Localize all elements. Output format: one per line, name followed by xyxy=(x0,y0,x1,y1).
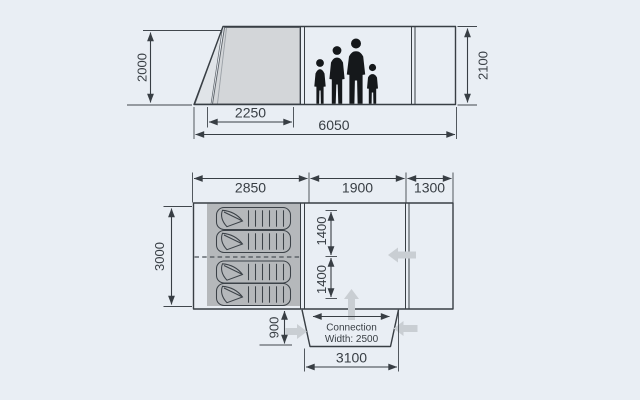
arrow-left-canopy xyxy=(388,248,416,263)
dim-cabin-widths: 1400 1400 xyxy=(314,211,337,299)
dim-label-2250: 2250 xyxy=(235,105,266,121)
connection-label-line2: Width: 2500 xyxy=(325,334,379,345)
arrow-right-tunnel-left xyxy=(286,324,308,339)
dim-plan-depth: 3000 xyxy=(152,207,192,307)
dim-side-height-right: 2100 xyxy=(458,27,491,106)
dim-label-2850: 2850 xyxy=(235,180,266,196)
dim-label-1900: 1900 xyxy=(342,180,373,196)
arrow-left-tunnel-right xyxy=(394,321,418,336)
tent-dimension-diagram: 2000 2100 2250 6050 xyxy=(0,0,640,400)
arrow-up-door xyxy=(344,289,359,320)
dim-label-900: 900 xyxy=(267,317,282,339)
dim-label-1400-top: 1400 xyxy=(314,217,329,246)
dim-label-3100: 3100 xyxy=(336,350,367,366)
connection-label-line1: Connection xyxy=(326,323,377,334)
dim-side-total-width: 6050 xyxy=(194,107,457,139)
floor-plan: 2850 1900 1300 3000 1400 1400 900 xyxy=(152,173,453,372)
dim-side-front-width: 2250 xyxy=(208,105,294,128)
dim-label-1400-bottom: 1400 xyxy=(314,265,329,294)
dim-label-2000: 2000 xyxy=(135,53,150,82)
dim-label-3000: 3000 xyxy=(152,242,167,271)
dim-plan-top-widths: 2850 1900 1300 xyxy=(193,173,454,203)
dim-label-6050: 6050 xyxy=(318,117,349,133)
dim-label-1300: 1300 xyxy=(414,180,445,196)
family-silhouette xyxy=(314,39,378,104)
diagram-canvas: 2000 2100 2250 6050 xyxy=(0,0,640,400)
dim-label-2100: 2100 xyxy=(476,51,491,80)
side-view: 2000 2100 2250 6050 xyxy=(127,27,491,140)
dim-connection-width: Connection Width: 2500 xyxy=(313,317,390,346)
